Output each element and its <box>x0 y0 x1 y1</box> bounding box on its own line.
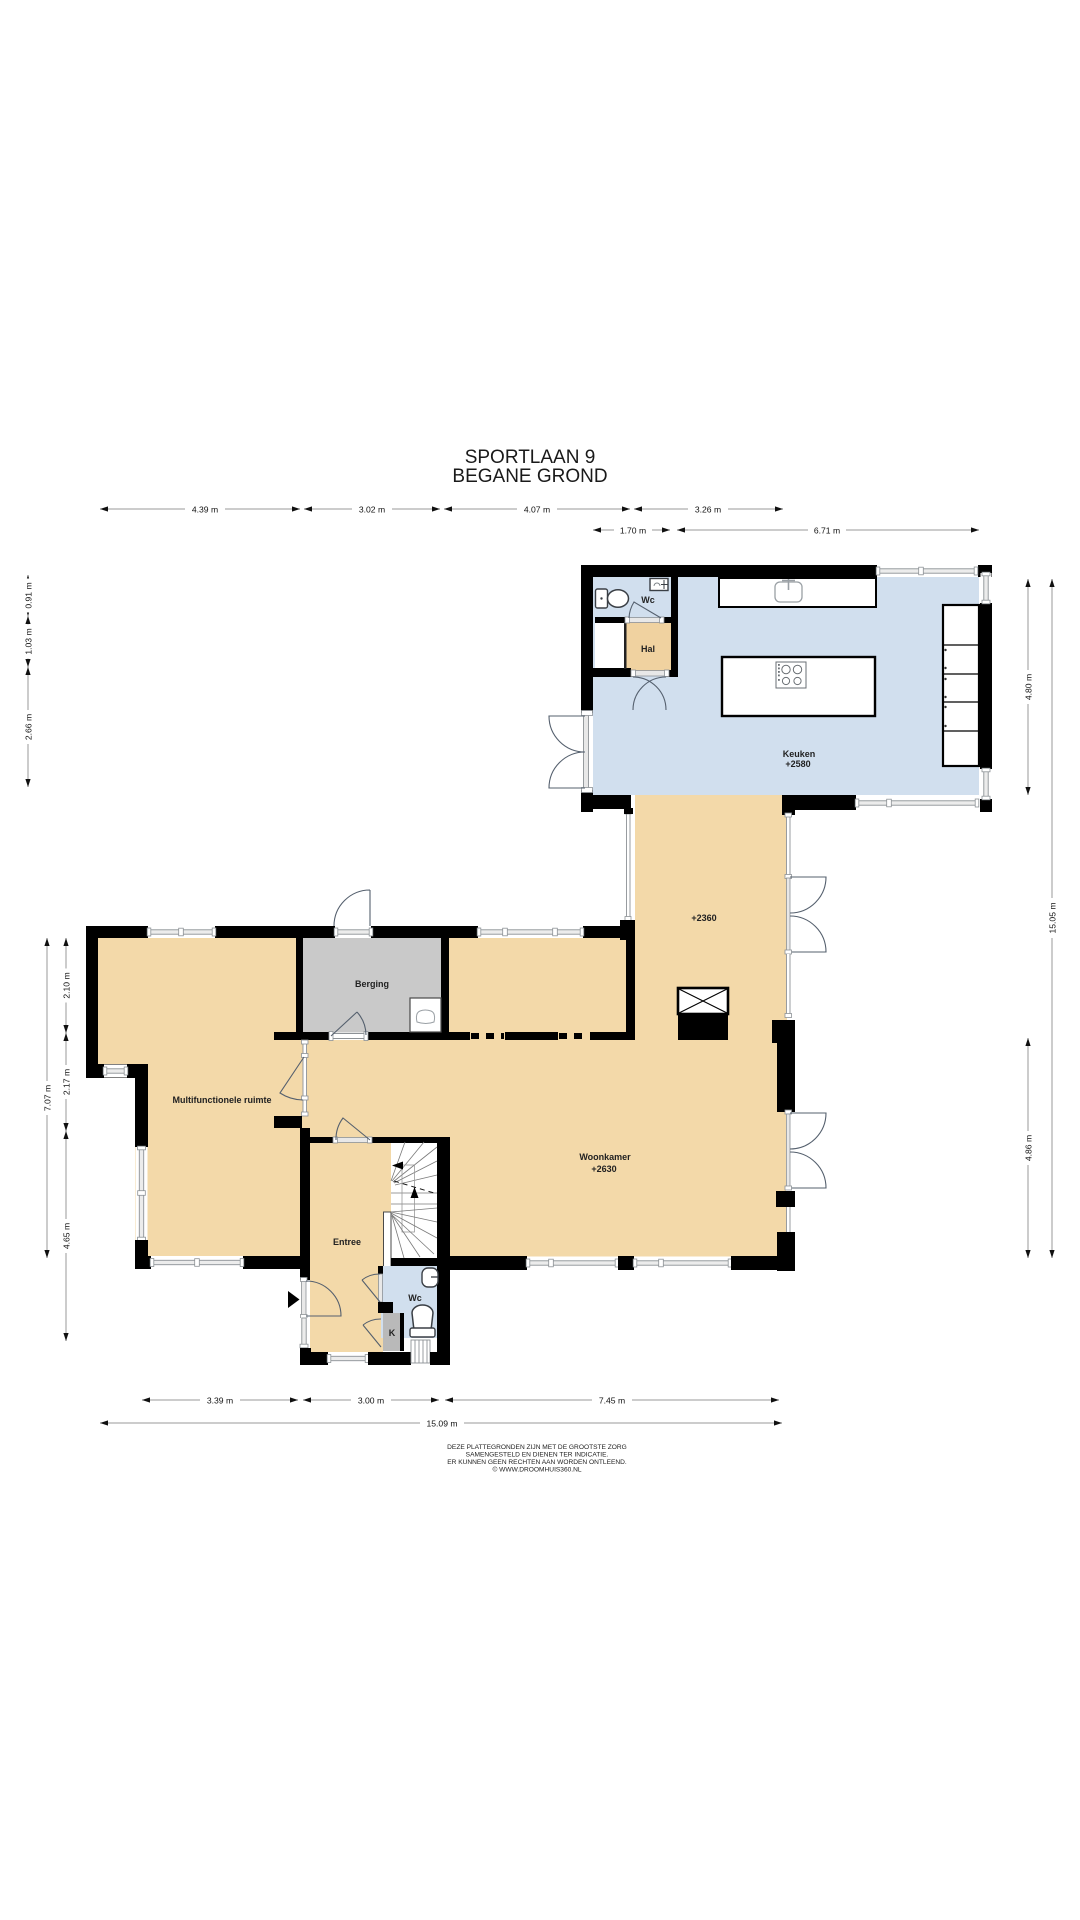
svg-text:0.91 m: 0.91 m <box>24 582 34 608</box>
svg-text:15.05 m: 15.05 m <box>1048 902 1058 933</box>
svg-text:Keuken: Keuken <box>783 749 816 759</box>
svg-text:3.26 m: 3.26 m <box>695 505 721 515</box>
svg-text:© WWW.DROOMHUIS360.NL: © WWW.DROOMHUIS360.NL <box>492 1466 581 1474</box>
svg-text:Woonkamer: Woonkamer <box>579 1152 631 1162</box>
svg-text:Wc: Wc <box>408 1293 422 1303</box>
svg-text:2.17 m: 2.17 m <box>62 1069 72 1095</box>
svg-text:2.66 m: 2.66 m <box>24 714 34 740</box>
svg-text:4.39 m: 4.39 m <box>192 505 218 515</box>
svg-text:K: K <box>389 1328 396 1338</box>
svg-text:7.07 m: 7.07 m <box>43 1085 53 1111</box>
svg-text:Wc: Wc <box>641 595 655 605</box>
svg-text:Entree: Entree <box>333 1237 361 1247</box>
svg-text:SPORTLAAN 9: SPORTLAAN 9 <box>465 447 596 468</box>
svg-text:DEZE PLATTEGRONDEN ZIJN MET DE: DEZE PLATTEGRONDEN ZIJN MET DE GROOTSTE … <box>447 1444 627 1451</box>
svg-text:3.02 m: 3.02 m <box>359 505 385 515</box>
svg-text:1.70 m: 1.70 m <box>620 526 646 536</box>
svg-text:6.71 m: 6.71 m <box>814 526 840 536</box>
svg-text:BEGANE GROND: BEGANE GROND <box>452 466 607 487</box>
svg-text:4.07 m: 4.07 m <box>524 505 550 515</box>
svg-text:1.03 m: 1.03 m <box>24 628 34 654</box>
svg-text:2.10 m: 2.10 m <box>62 972 72 998</box>
svg-text:+2630: +2630 <box>591 1164 616 1174</box>
svg-text:4.86 m: 4.86 m <box>1024 1135 1034 1161</box>
svg-text:15.09 m: 15.09 m <box>426 1419 457 1429</box>
svg-text:4.80 m: 4.80 m <box>1024 674 1034 700</box>
svg-text:3.00 m: 3.00 m <box>358 1396 384 1406</box>
svg-text:7.45 m: 7.45 m <box>599 1396 625 1406</box>
svg-text:+2580: +2580 <box>785 759 810 769</box>
svg-text:3.39 m: 3.39 m <box>207 1396 233 1406</box>
svg-text:Berging: Berging <box>355 979 389 989</box>
svg-text:+2360: +2360 <box>691 913 716 923</box>
svg-text:ER KUNNEN GEEN RECHTEN AAN WOR: ER KUNNEN GEEN RECHTEN AAN WORDEN ONTLEE… <box>447 1459 627 1466</box>
svg-text:Multifunctionele ruimte: Multifunctionele ruimte <box>173 1095 272 1105</box>
svg-text:4.65 m: 4.65 m <box>62 1223 72 1249</box>
svg-text:SAMENGESTELD EN DIENEN TER IND: SAMENGESTELD EN DIENEN TER INDICATIE. <box>466 1452 609 1459</box>
svg-text:Hal: Hal <box>641 644 655 654</box>
